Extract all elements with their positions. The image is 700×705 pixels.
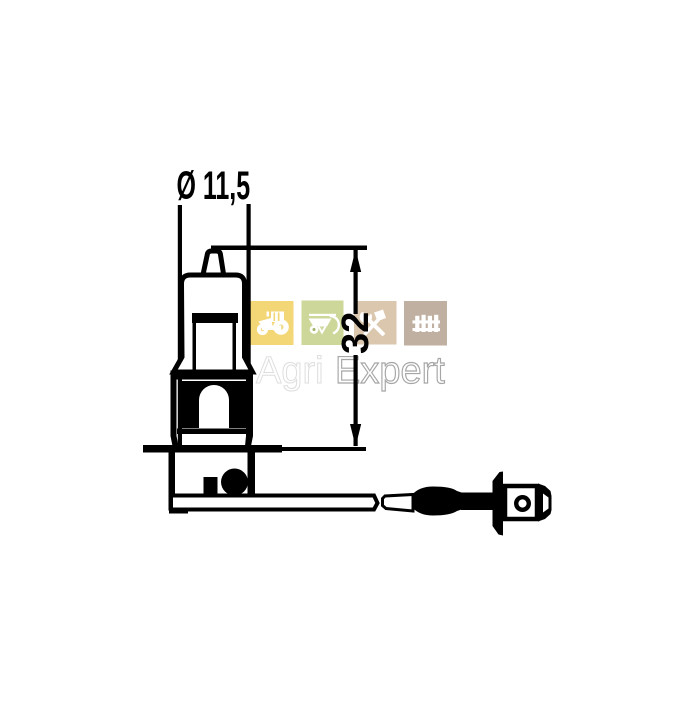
svg-text:Expert: Expert: [335, 350, 445, 392]
svg-text:32: 32: [335, 312, 377, 354]
svg-text:Agri: Agri: [256, 350, 324, 392]
svg-text:Ø 11,5: Ø 11,5: [177, 164, 251, 208]
